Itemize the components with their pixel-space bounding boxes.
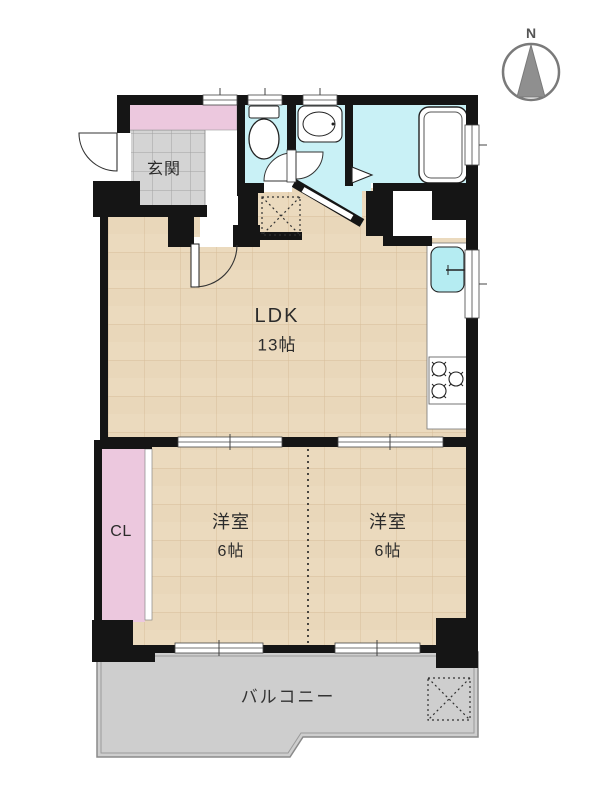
bedroom-right-label: 洋室 xyxy=(369,513,407,531)
shoe-cabinet xyxy=(123,104,237,130)
entrance-label: 玄関 xyxy=(147,162,181,178)
top-window-1 xyxy=(203,88,237,105)
toilet-icon xyxy=(249,106,279,159)
closet-sliding-track xyxy=(145,449,152,620)
ldk-door-opening xyxy=(194,237,233,247)
closet-label: CL xyxy=(110,524,131,540)
top-window-2 xyxy=(248,88,282,105)
bathtub-icon xyxy=(419,107,467,183)
bedrooms-floor xyxy=(100,440,470,650)
ldk-door-leaf xyxy=(191,244,199,287)
bedroom-left-label: 洋室 xyxy=(212,513,250,531)
balcony-label: バルコニー xyxy=(241,689,336,706)
washbasin-icon xyxy=(298,106,342,142)
compass-north-label: N xyxy=(526,26,536,40)
bedroom-left-size-label: 6帖 xyxy=(218,544,245,560)
ldk-size-label: 13帖 xyxy=(258,337,297,354)
ldk-label: LDK xyxy=(255,306,300,326)
floorplan-drawing xyxy=(0,0,601,800)
bedroom-right-size-label: 6帖 xyxy=(375,544,402,560)
stove-icon xyxy=(429,357,468,404)
north-compass-icon xyxy=(503,44,559,100)
kitchen-window xyxy=(465,250,487,318)
floorplan-page: N 玄関 LDK 13帖 洋室 6帖 洋室 6帖 CL バルコニー xyxy=(0,0,601,800)
entrance-opening xyxy=(116,133,131,181)
entrance-door-swing-icon xyxy=(79,133,117,171)
top-window-3 xyxy=(303,88,337,105)
washroom-door-leaf xyxy=(287,150,296,182)
bathroom-window xyxy=(465,125,487,165)
kitchen-sink-icon xyxy=(431,247,465,292)
